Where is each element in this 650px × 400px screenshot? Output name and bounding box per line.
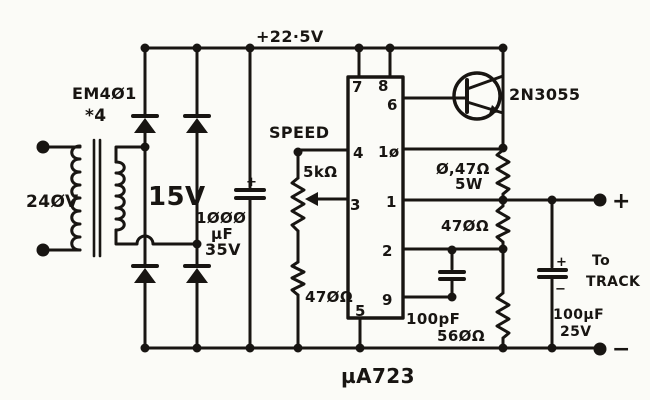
secondary-winding — [116, 162, 124, 230]
label-ic: µA723 — [341, 364, 415, 388]
junction-dot — [499, 144, 508, 153]
comp-capacitor-100pf — [440, 250, 464, 297]
speed-resistor-body — [292, 262, 304, 295]
junction-dot — [499, 245, 508, 254]
filter-capacitor: + — [236, 48, 264, 348]
transformer-core — [94, 140, 100, 256]
output-cap-minus-sign: − — [555, 282, 566, 297]
junction-dot — [141, 143, 150, 152]
junction-dot — [548, 344, 557, 353]
label-dest-line1: To — [592, 253, 610, 269]
plus-sign: + — [612, 189, 631, 214]
label-secondary-voltage: 15V — [148, 182, 206, 212]
diode-symbol — [134, 268, 156, 283]
label-output-cap-value: 100µF — [553, 307, 604, 323]
junction-dot — [548, 196, 557, 205]
ic-pin-8: 8 — [378, 77, 389, 95]
ic-pin-9: 9 — [382, 291, 393, 309]
ic-pin-7: 7 — [352, 78, 363, 96]
junction-dot — [193, 44, 202, 53]
junction-dot — [499, 196, 508, 205]
junction-dot — [448, 293, 457, 302]
diode-symbol — [186, 118, 208, 133]
junction-dot — [356, 344, 365, 353]
ic-pin-10: 1ø — [378, 143, 400, 161]
resistor-body — [497, 249, 509, 348]
junction-dot — [294, 148, 303, 157]
resistor-body — [497, 148, 509, 200]
diode-d2 — [185, 116, 209, 133]
junction-dot — [294, 344, 303, 353]
label-dest-line2: TRACK — [586, 274, 641, 290]
junction-dot — [141, 44, 150, 53]
secondary-top-wire — [116, 147, 145, 162]
label-rectifier-qty: *4 — [85, 106, 107, 126]
feedback-resistor-470 — [497, 200, 509, 249]
junction-dot — [448, 246, 457, 255]
label-mains-voltage: 24ØV — [26, 192, 79, 212]
junction-dot — [193, 344, 202, 353]
label-filter-cap-voltage: 35V — [205, 240, 241, 259]
ic-pin-5: 5 — [355, 302, 366, 320]
label-comp-cap: 100pF — [406, 310, 460, 328]
circuit-schematic: + 7 8 6 4 1ø 3 1 2 9 5 — [0, 0, 650, 400]
label-output-cap-voltage: 25V — [560, 324, 592, 340]
junction-dot — [246, 344, 255, 353]
filter-cap-plus-sign: + — [246, 175, 257, 190]
label-emitter-resistor-power: 5W — [455, 175, 483, 193]
ic-pin-4: 4 — [353, 144, 364, 162]
junction-dot — [141, 344, 150, 353]
diode-d1 — [133, 116, 157, 133]
resistor-body — [497, 200, 509, 249]
junction-dot — [499, 44, 508, 53]
junction-dot — [499, 344, 508, 353]
ic-pin-3: 3 — [350, 196, 361, 214]
label-divider-resistor: 56ØΩ — [437, 327, 485, 345]
junction-dot — [193, 240, 202, 249]
plus-output-terminal — [594, 194, 607, 207]
pot-resistor-body — [292, 178, 304, 231]
minus-sign: − — [612, 337, 631, 362]
diode-d4 — [185, 266, 209, 283]
label-supply-rail: +22·5V — [256, 27, 324, 46]
wiper-arrow — [305, 192, 318, 206]
diode-d3 — [133, 266, 157, 283]
ic-pin-6: 6 — [387, 96, 398, 114]
junction-dot — [386, 44, 395, 53]
label-pot-value: 5kΩ — [303, 163, 337, 181]
ic-pin-2: 2 — [382, 242, 393, 260]
minus-output-terminal — [594, 343, 607, 356]
emitter-resistor-0r47 — [497, 148, 509, 200]
junction-dot — [246, 44, 255, 53]
label-feedback-resistor: 47ØΩ — [441, 217, 489, 235]
ic-pin-1: 1 — [386, 193, 397, 211]
label-rectifier-type: EM4Ø1 — [72, 84, 137, 103]
divider-resistor-560 — [497, 249, 509, 348]
label-transistor: 2N3055 — [509, 85, 580, 104]
diode-symbol — [186, 268, 208, 283]
label-speed-resistor: 47ØΩ — [305, 288, 353, 306]
output-cap-plus-sign: + — [556, 255, 567, 270]
junction-dot — [355, 44, 364, 53]
diode-symbol — [134, 118, 156, 133]
label-speed: SPEED — [269, 123, 329, 142]
secondary-bottom-wire-with-hop — [116, 230, 197, 244]
